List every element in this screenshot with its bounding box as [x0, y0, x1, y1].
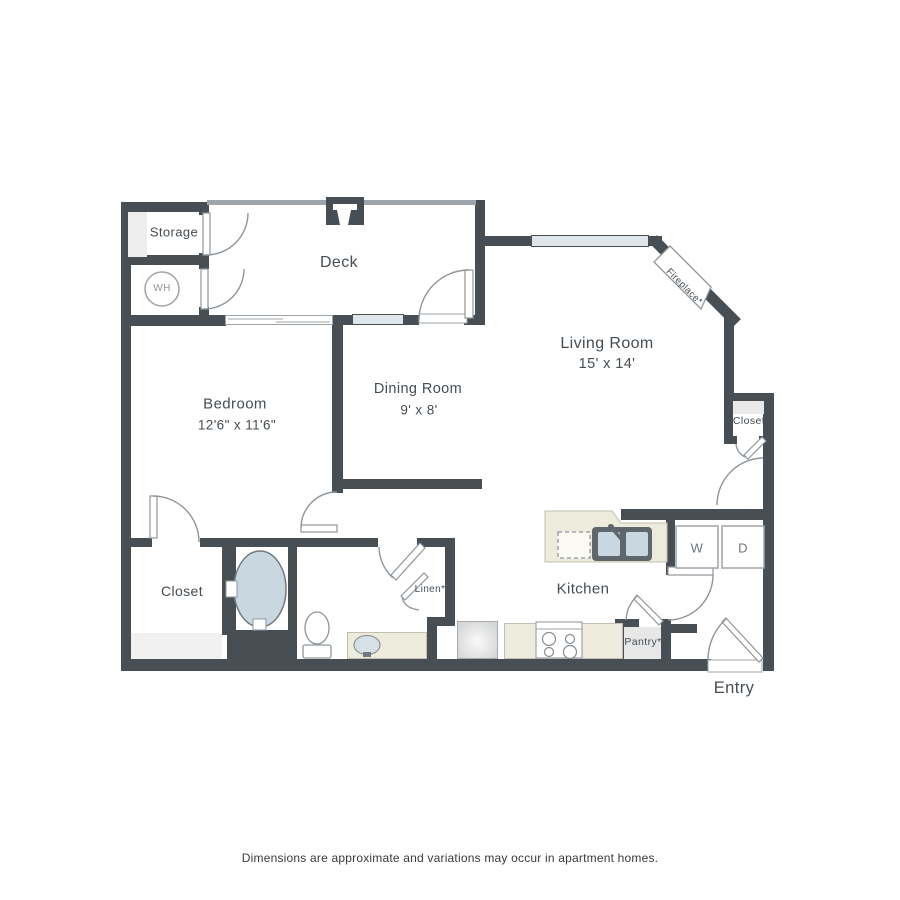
wall [332, 324, 343, 493]
water-heater-door-leaf [201, 269, 208, 309]
bedroom-label: Bedroom [203, 397, 267, 412]
deck-rail-post-cut [333, 204, 357, 225]
storage-label: Storage [150, 226, 198, 239]
pantry-label: Pantry* [624, 637, 661, 648]
wall [649, 236, 662, 246]
kitchen-sink [592, 527, 652, 561]
wall [121, 315, 226, 326]
living-room-window [531, 235, 649, 247]
wall [445, 538, 455, 626]
living-hall-door-arc [717, 458, 763, 505]
water-heater-label: WH [153, 284, 170, 294]
wall [724, 314, 734, 394]
wall [121, 202, 208, 212]
wall [661, 619, 671, 671]
deck-label: Deck [320, 255, 358, 271]
refrigerator [457, 621, 498, 659]
wall [759, 436, 773, 444]
wall [121, 202, 131, 671]
disclaimer-text: Dimensions are approximate and variation… [0, 851, 900, 865]
kitchen-faucet [610, 526, 623, 541]
linen-door-arc [402, 597, 419, 610]
wall [427, 617, 437, 671]
wall [621, 509, 671, 520]
kitchen-sink-basin [626, 532, 648, 556]
living-room-label: Living Room [560, 336, 653, 352]
dishwasher [558, 532, 590, 558]
wall [227, 630, 297, 659]
bedroom-closet-door-leaf [150, 496, 157, 538]
wall [464, 315, 485, 325]
wall [671, 624, 697, 633]
bathtub-drain [253, 619, 266, 630]
laundry-door-arc [668, 575, 713, 620]
wall [475, 236, 532, 246]
wall [343, 479, 482, 489]
bathtub [234, 551, 286, 627]
deck-door-arc [419, 270, 469, 320]
kitchen-faucet-head [608, 524, 614, 530]
kitchen-counter [504, 623, 623, 659]
bathroom-door-arc [379, 547, 393, 578]
wall [121, 538, 152, 547]
deck-railing [207, 200, 476, 205]
storage-shelf [128, 212, 147, 257]
fireplace-label: Fireplace* [664, 267, 704, 307]
bedroom-dims: 12'6" x 11'6" [198, 418, 276, 432]
wall [475, 200, 485, 325]
bathroom-vanity [347, 632, 427, 659]
deck-door-threshold [419, 314, 467, 323]
washer-label: W [691, 542, 704, 555]
dryer-label: D [738, 542, 748, 555]
bedroom-closet-shelf [131, 633, 222, 659]
linen-label: Linen* [415, 585, 446, 595]
dining-window [352, 314, 404, 325]
entry-door-arc [708, 619, 726, 661]
living-room-dims: 15' x 14' [579, 357, 636, 372]
wall [404, 315, 419, 325]
entry-label: Entry [714, 680, 755, 697]
hall-closet-label: Closet [733, 416, 765, 427]
wall [763, 393, 774, 671]
bedroom-closet-door-arc [153, 496, 199, 542]
deck-door-leaf [465, 270, 473, 318]
kitchen-sink-basin [598, 532, 620, 556]
bedroom-door-leaf [301, 525, 337, 532]
wall [222, 545, 231, 635]
entry-threshold [708, 660, 762, 672]
hall-closet-shelf [733, 401, 764, 414]
floor-plan: Storage WH Deck Living Room 15' x 14' Di… [0, 0, 900, 900]
wall [666, 509, 774, 520]
wall [288, 547, 297, 632]
dining-room-dims: 9' x 8' [400, 403, 437, 417]
entry-door-leaf [722, 618, 763, 662]
toilet-bowl [305, 612, 329, 644]
dining-room-label: Dining Room [374, 382, 462, 397]
toilet-tank [303, 645, 331, 658]
kitchen-label: Kitchen [557, 582, 610, 597]
bedroom-window [225, 315, 333, 325]
bedroom-closet-label: Closet [161, 584, 203, 598]
bathroom-door-leaf [391, 543, 425, 580]
storage-door-arc [206, 213, 248, 255]
pantry-door-arc [626, 596, 637, 620]
storage-door-leaf [203, 213, 210, 255]
water-heater-door-arc [204, 269, 244, 309]
hall-closet-door-arc [736, 444, 745, 457]
bedroom-door-arc [301, 492, 337, 528]
wall [724, 436, 737, 444]
